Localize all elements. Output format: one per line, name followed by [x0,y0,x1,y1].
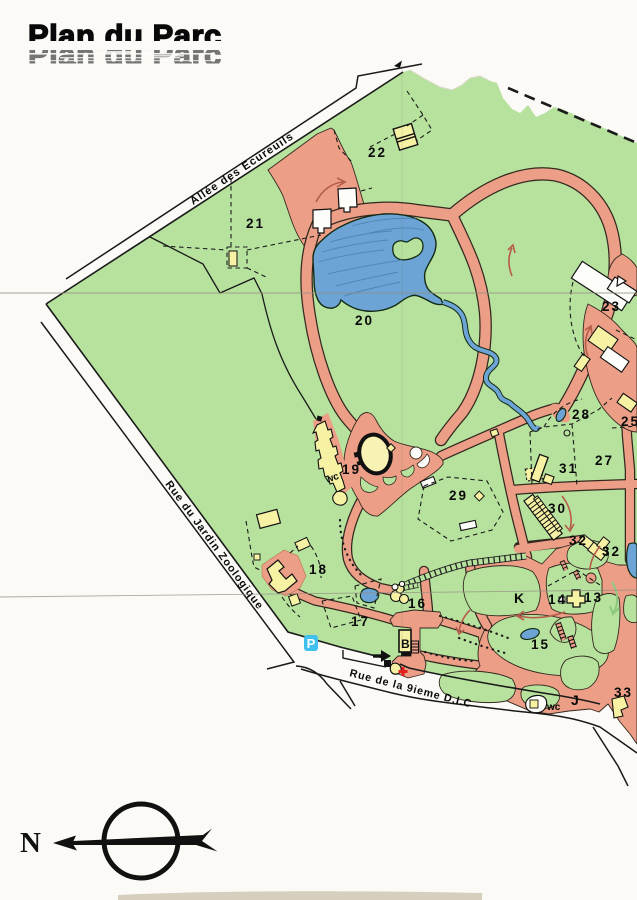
svg-text:27: 27 [595,453,614,468]
svg-text:19: 19 [342,462,361,477]
svg-text:B: B [401,637,412,651]
svg-text:20: 20 [355,313,374,328]
svg-text:N: N [20,827,41,859]
svg-text:32: 32 [569,533,588,548]
svg-text:32: 32 [602,544,621,559]
svg-text:14: 14 [548,592,567,607]
svg-text:K: K [514,590,526,606]
svg-text:28: 28 [572,407,591,422]
svg-text:21: 21 [246,216,265,231]
svg-text:P: P [307,636,316,651]
svg-text:16: 16 [408,596,427,611]
svg-text:18: 18 [309,562,328,577]
svg-text:13: 13 [584,590,603,605]
svg-text:30: 30 [548,501,567,516]
svg-text:15: 15 [531,637,550,652]
svg-text:29: 29 [449,488,468,503]
svg-text:wc: wc [546,702,561,713]
svg-text:31: 31 [559,461,578,476]
svg-text:J: J [571,692,581,708]
svg-text:17: 17 [351,614,370,629]
svg-text:23: 23 [602,299,621,314]
svg-text:33: 33 [614,685,633,700]
svg-text:22: 22 [368,145,387,160]
svg-text:25: 25 [621,414,637,429]
